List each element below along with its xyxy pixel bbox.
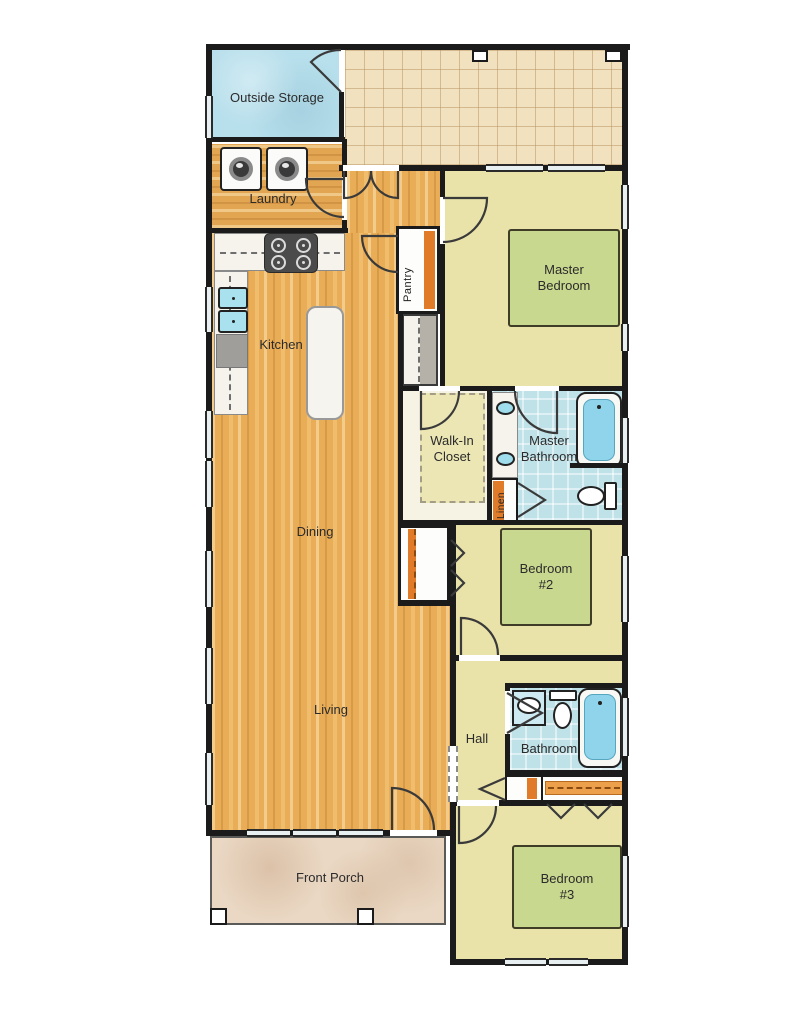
bifold-door-icon: [451, 540, 464, 596]
laundry-label: Laundry: [250, 191, 297, 207]
front-porch-label: Front Porch: [296, 870, 364, 886]
open-door-icon: [518, 483, 545, 517]
outside-storage-label: Outside Storage: [230, 90, 324, 106]
door-arc-icon: [311, 50, 341, 92]
door-arc-icon: [461, 618, 498, 655]
door-arc-icon: [344, 171, 371, 198]
linen-label: Linen: [496, 481, 507, 519]
kitchen-label: Kitchen: [259, 337, 302, 353]
open-door-icon: [480, 778, 505, 800]
door-arc-icon: [362, 236, 398, 272]
hall-label: Hall: [466, 731, 488, 747]
door-swings-layer: [0, 0, 791, 1024]
door-arc-icon: [515, 391, 557, 433]
door-arc-icon: [459, 806, 496, 843]
door-arc-icon: [371, 171, 398, 198]
dining-label: Dining: [297, 524, 334, 540]
walk-in-closet-label: Walk-In Closet: [416, 433, 488, 466]
open-door-icon: [507, 693, 542, 733]
bathroom-label: Bathroom: [521, 741, 577, 757]
bifold-door-icon: [547, 804, 612, 818]
master-bathroom-label: Master Bathroom: [507, 433, 591, 466]
door-arc-icon: [392, 788, 434, 830]
door-arc-icon: [306, 179, 344, 217]
pantry-label: Pantry: [402, 240, 414, 302]
door-arc-icon: [421, 391, 459, 429]
living-label: Living: [314, 702, 348, 718]
door-arc-icon: [443, 198, 487, 242]
floor-plan: Master Bedroom Bedroom #2 Bedroom #3: [0, 0, 791, 1024]
